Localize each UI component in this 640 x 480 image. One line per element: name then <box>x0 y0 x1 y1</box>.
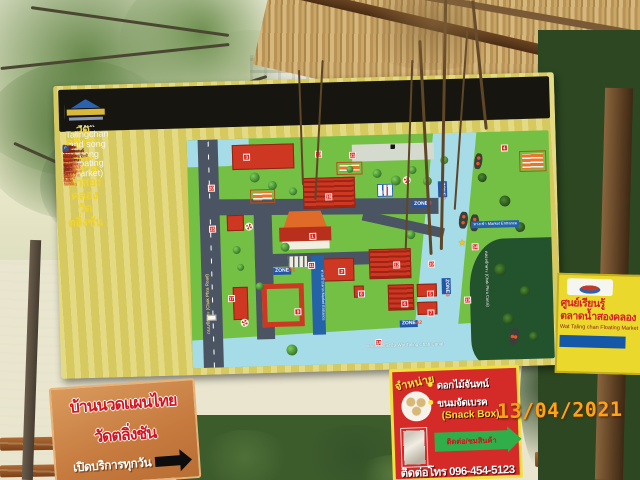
map-marker: 19 <box>464 297 471 304</box>
photo-scene: แผนผังวัดตลิ่งชัน และตลาดน้ำสองคลองวัดตล… <box>0 0 640 480</box>
learning-center-sign: ศูนย์เรียนรู้ ตลาดน้ำสองคลอง Wat Taling … <box>555 273 640 375</box>
map-building <box>388 284 415 311</box>
contact-arrow: ติดต่อ/ชมสินค้า <box>434 430 509 452</box>
map-building <box>227 214 244 231</box>
map-building <box>262 284 305 328</box>
thai-massage-sign: บ้านนวดแผนไทย วัดตลิ่งชัน เปิดบริการทุกว… <box>49 378 202 480</box>
learning-sign-logo <box>567 278 613 296</box>
tree <box>529 331 538 340</box>
zone-label: ZONE A2 <box>400 320 418 327</box>
map-building <box>232 144 295 171</box>
map-building <box>288 256 307 268</box>
pinwheel-icon <box>241 319 249 327</box>
map-marker: 11 <box>308 262 315 269</box>
map-marker: 12 <box>393 262 400 269</box>
pavilion-logo <box>64 95 107 126</box>
map-marker: 17 <box>228 295 235 302</box>
tree <box>372 169 381 178</box>
foliage-blob <box>200 430 290 480</box>
tree <box>406 230 415 239</box>
map-marker: 8 <box>358 291 365 298</box>
map-marker: 9 <box>294 309 301 316</box>
map-building <box>377 184 393 197</box>
map-marker: 4 <box>501 145 508 152</box>
massage-sign-line1: บ้านนวดแผนไทย <box>69 389 177 421</box>
boat-icon <box>473 153 483 170</box>
map-marker: 7 <box>427 309 434 316</box>
temple-base <box>282 240 329 250</box>
tree <box>256 282 264 290</box>
map-marker: 5 <box>427 291 434 298</box>
map-marker: 3 <box>243 154 250 161</box>
map-marker: 16 <box>325 194 332 201</box>
map-marker: 13 <box>315 151 322 158</box>
map-marker: 14 <box>472 243 479 250</box>
tree <box>249 173 259 183</box>
tree <box>267 181 276 190</box>
tree <box>408 166 416 174</box>
star-icon: ★ <box>458 239 466 248</box>
snack-item-3: (Snack Box) <box>442 408 500 421</box>
tree <box>390 175 400 185</box>
legend-text: ที่จอดรถจักรยานยนต์(Motorcycle Parking) <box>63 145 84 162</box>
right-arrow-icon <box>155 455 182 467</box>
map-marker: 21 <box>349 152 356 159</box>
map-marker: 2 <box>338 268 345 275</box>
legend-english: (Toilet) <box>64 181 73 185</box>
massage-sign-line2: วัดตลิ่งชัน <box>93 421 157 450</box>
snack-photo-circle <box>401 391 432 422</box>
massage-sign-line3: เปิดบริการทุกวัน <box>73 453 152 477</box>
map-building <box>369 248 412 279</box>
tree <box>347 165 354 172</box>
snack-item-1: ดอกไม้จันทน์ <box>436 377 488 394</box>
pinwheel-icon <box>403 176 411 184</box>
pinwheel-icon <box>245 223 253 231</box>
contact-arrow-label: ติดต่อ/ชมสินค้า <box>446 434 497 448</box>
market-stall-grid <box>352 143 434 162</box>
map-building <box>250 189 276 203</box>
tree <box>477 173 486 182</box>
map-building <box>233 287 249 320</box>
learning-sign-line3: Wat Taling chan Floating Market <box>560 324 640 332</box>
map-marker: 10 <box>428 261 435 268</box>
camera-date-stamp: 13/04/2021 <box>497 397 623 423</box>
learning-sign-line2: ตลาดน้ำสองคลอง <box>560 310 640 325</box>
entrance-label: ทางเข้า Market Entrance <box>471 220 519 228</box>
massage-sign-open-row: เปิดบริการทุกวัน <box>73 451 182 477</box>
zone-label: ZONE B <box>442 278 451 294</box>
zone-label: ZONE C <box>438 181 447 197</box>
map-board: แผนผังวัดตลิ่งชัน และตลาดน้ำสองคลองวัดตล… <box>53 72 562 379</box>
forest <box>468 237 555 365</box>
snack-photo <box>400 427 428 468</box>
tree <box>237 264 244 271</box>
tree <box>289 187 297 195</box>
map-building <box>303 177 356 209</box>
tree <box>233 246 241 254</box>
map-marker: 1 <box>309 233 316 240</box>
board-header: แผนผังวัดตลิ่งชัน และตลาดน้ำสองคลองวัดตล… <box>58 76 550 132</box>
tree <box>280 242 289 251</box>
map-legend: 1พระอุโบสถ(Ubosot Hall)2ศาลาเอนกประสงค์เ… <box>63 142 191 371</box>
legend-english: (Motorcycle Parking) <box>63 154 84 162</box>
zone-label: ZONE A1 <box>273 267 291 274</box>
learning-sign-blue-bar <box>559 335 625 349</box>
map-marker: 15 <box>209 225 216 232</box>
map-marker: 20 <box>208 185 215 192</box>
snack-phone: ติดต่อโทร 096-454-5123 <box>395 461 520 480</box>
tree <box>500 195 511 206</box>
map-marker: 6 <box>401 300 408 307</box>
map-building <box>519 150 547 172</box>
zone-label: ZONE D <box>412 201 430 208</box>
site-map: ★ทางเข้าตลาด Market Entranceทางเข้า Mark… <box>187 130 555 368</box>
